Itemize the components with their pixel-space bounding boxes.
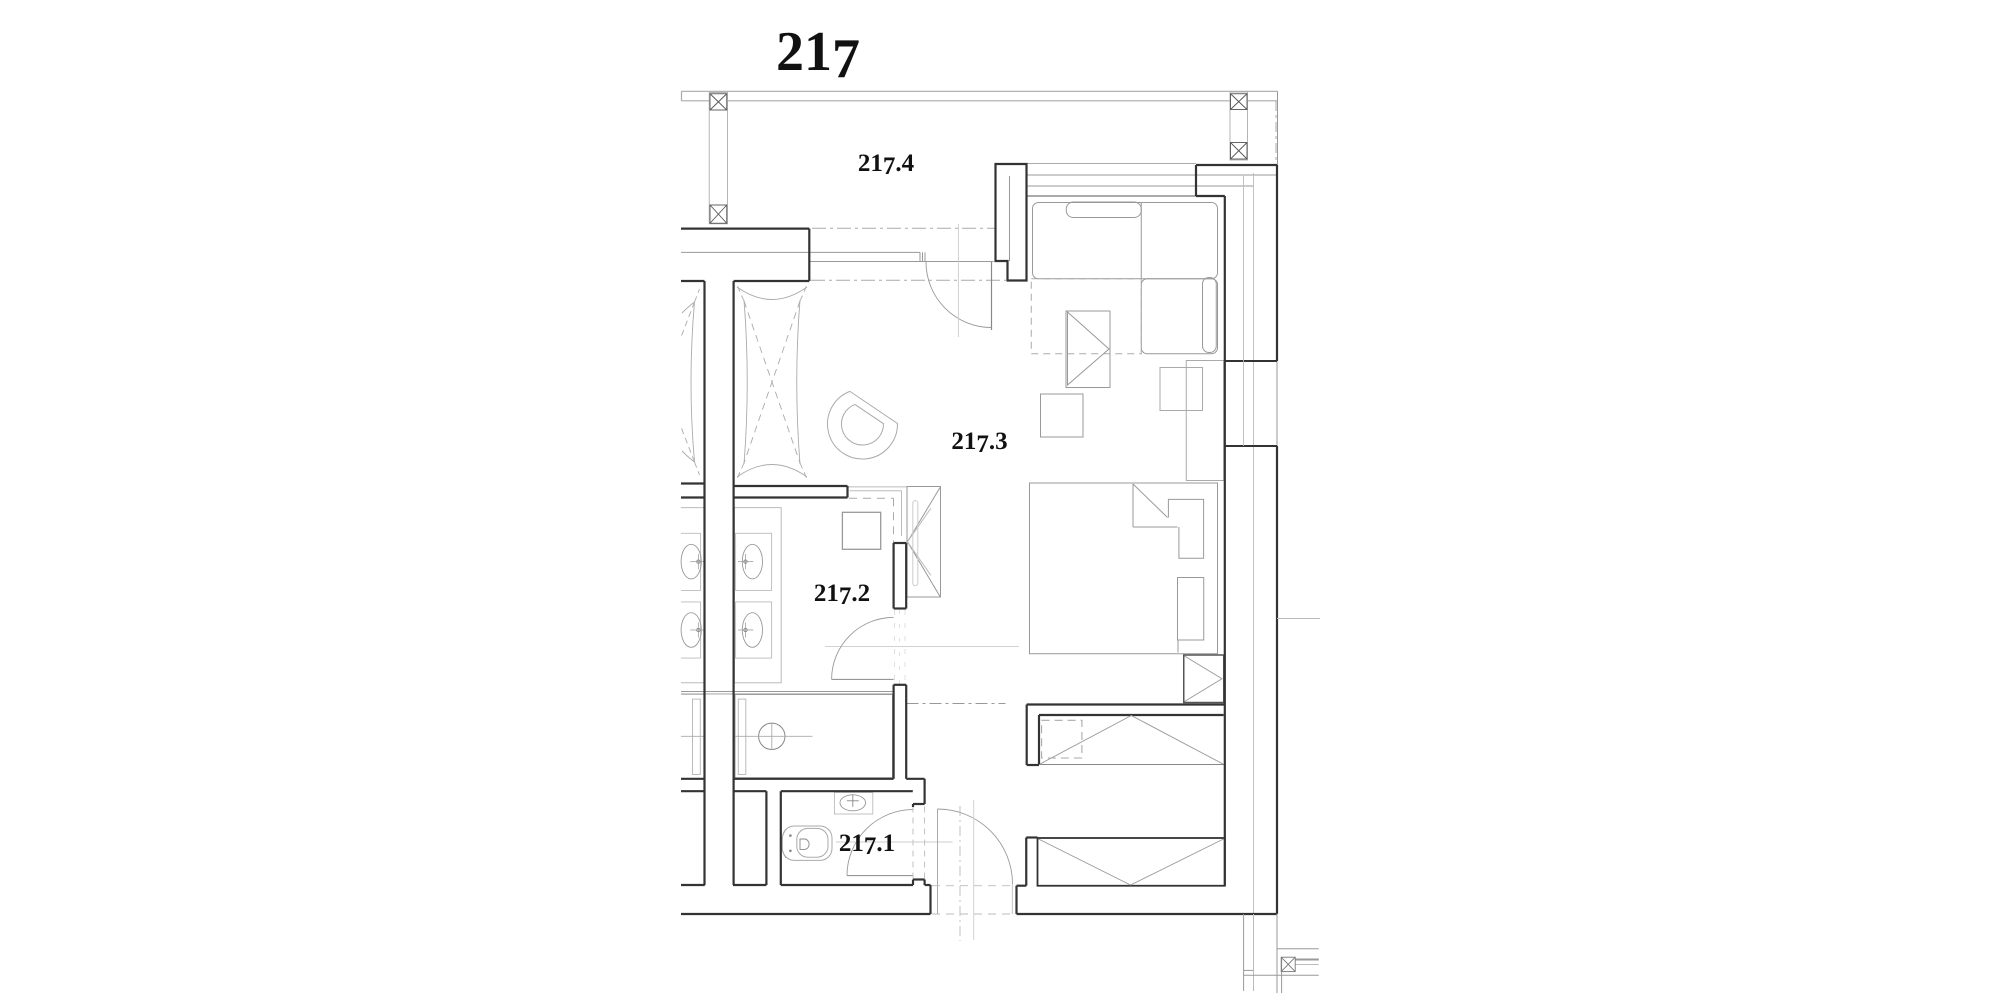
svg-text:217.3: 217.3 (951, 428, 1007, 458)
svg-text:217.1: 217.1 (839, 830, 895, 860)
svg-text:217.2: 217.2 (814, 580, 870, 610)
svg-text:217.4: 217.4 (858, 150, 915, 180)
svg-text:217: 217 (776, 21, 860, 90)
